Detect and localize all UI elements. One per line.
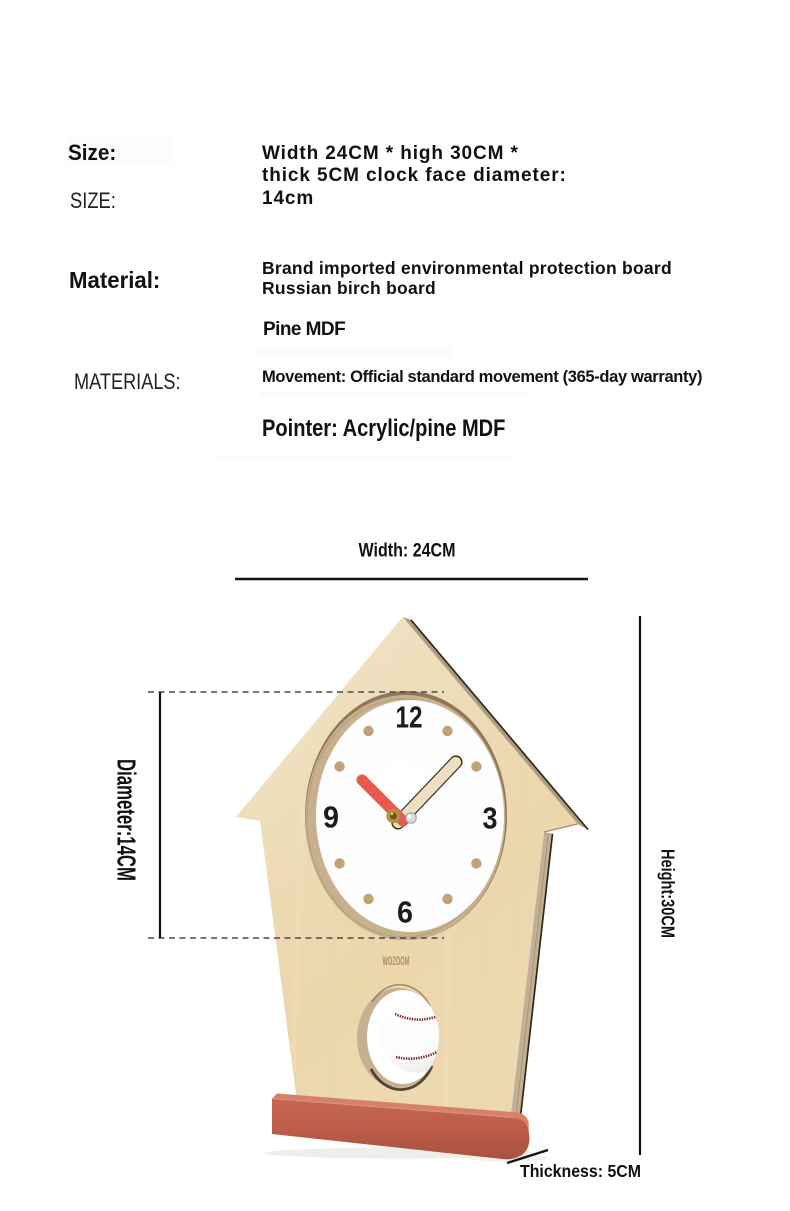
svg-text:Height:30CM: Height:30CM [658,849,678,938]
svg-text:9: 9 [323,800,339,835]
svg-text:12: 12 [396,700,423,735]
svg-text:WOZOOM: WOZOOM [383,954,410,968]
svg-text:Diameter:14CM: Diameter:14CM [112,759,140,881]
svg-text:3: 3 [483,801,498,836]
svg-text:6: 6 [397,895,413,930]
svg-text:Thickness: 5CM: Thickness: 5CM [520,1161,641,1181]
svg-text:Width: 24CM: Width: 24CM [359,540,456,562]
